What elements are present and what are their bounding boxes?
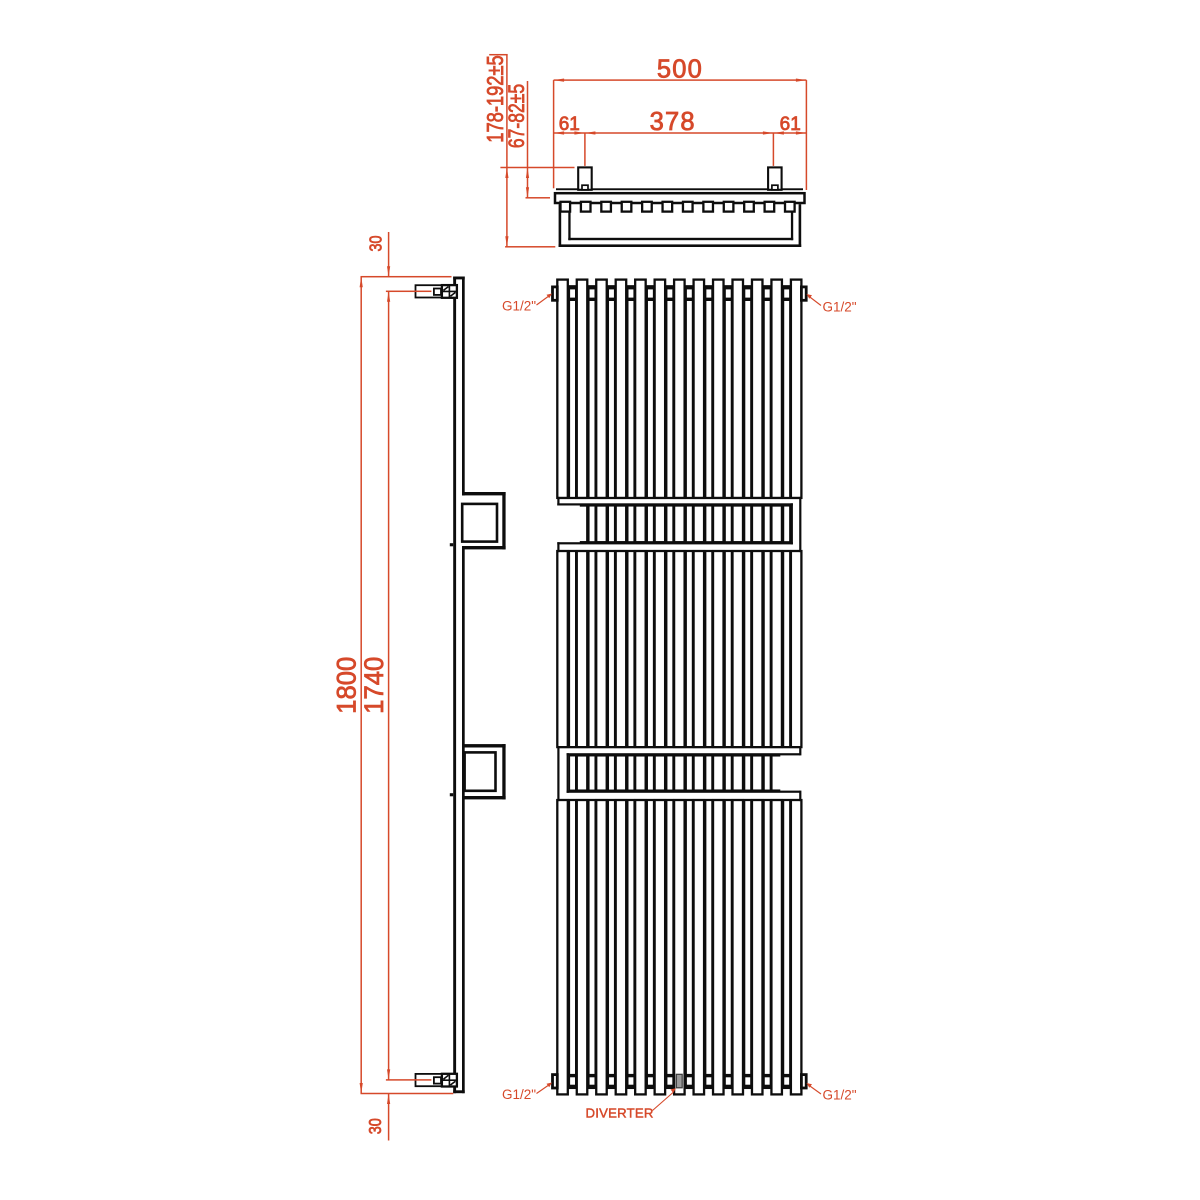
svg-text:G1/2": G1/2" <box>502 298 536 313</box>
svg-text:378: 378 <box>650 108 696 136</box>
svg-text:G1/2": G1/2" <box>823 1087 857 1102</box>
svg-text:500: 500 <box>657 56 703 84</box>
svg-text:61: 61 <box>559 114 580 135</box>
svg-text:G1/2": G1/2" <box>823 299 857 314</box>
svg-text:1740: 1740 <box>358 657 389 714</box>
svg-text:DIVERTER: DIVERTER <box>586 1106 654 1121</box>
svg-text:67-82±5: 67-82±5 <box>505 84 530 148</box>
svg-text:30: 30 <box>366 1118 386 1134</box>
svg-text:30: 30 <box>366 235 386 251</box>
svg-text:61: 61 <box>780 114 801 135</box>
svg-text:1800: 1800 <box>331 657 362 714</box>
svg-text:G1/2": G1/2" <box>502 1087 536 1102</box>
